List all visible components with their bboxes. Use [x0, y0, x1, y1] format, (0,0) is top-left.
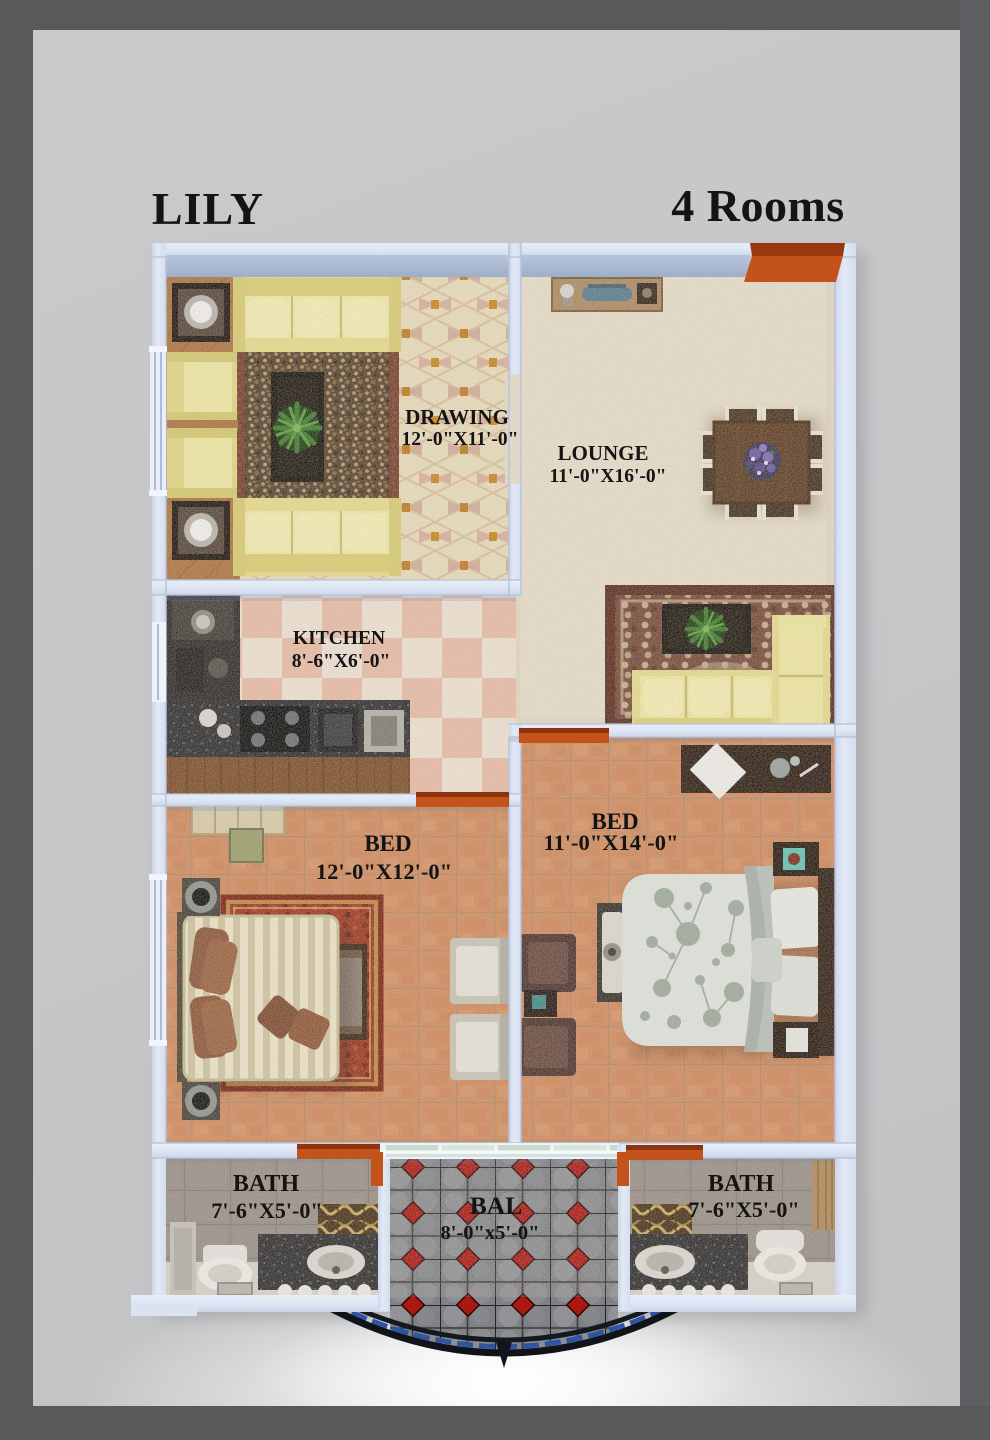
svg-text:8'-6"X6'-0": 8'-6"X6'-0" — [292, 651, 391, 672]
svg-text:BATH: BATH — [708, 1171, 775, 1197]
svg-text:4 Rooms: 4 Rooms — [671, 180, 844, 231]
svg-text:12'-0"X11'-0": 12'-0"X11'-0" — [402, 429, 519, 450]
svg-text:KITCHEN: KITCHEN — [293, 628, 385, 649]
svg-text:BAL: BAL — [470, 1191, 522, 1220]
svg-text:DRAWING: DRAWING — [405, 405, 509, 429]
svg-text:LILY: LILY — [152, 183, 264, 234]
svg-text:11'-0"X16'-0": 11'-0"X16'-0" — [550, 466, 667, 487]
svg-text:BED: BED — [364, 831, 411, 856]
svg-text:7'-6"X5'-0": 7'-6"X5'-0" — [688, 1197, 799, 1222]
svg-text:11'-0"X14'-0": 11'-0"X14'-0" — [544, 830, 679, 855]
svg-text:8'-0"x5'-0": 8'-0"x5'-0" — [440, 1222, 539, 1244]
svg-text:BATH: BATH — [233, 1171, 300, 1197]
svg-text:7'-6"X5'-0": 7'-6"X5'-0" — [211, 1198, 322, 1223]
svg-text:LOUNGE: LOUNGE — [557, 441, 648, 465]
svg-text:12'-0"X12'-0": 12'-0"X12'-0" — [316, 859, 452, 884]
